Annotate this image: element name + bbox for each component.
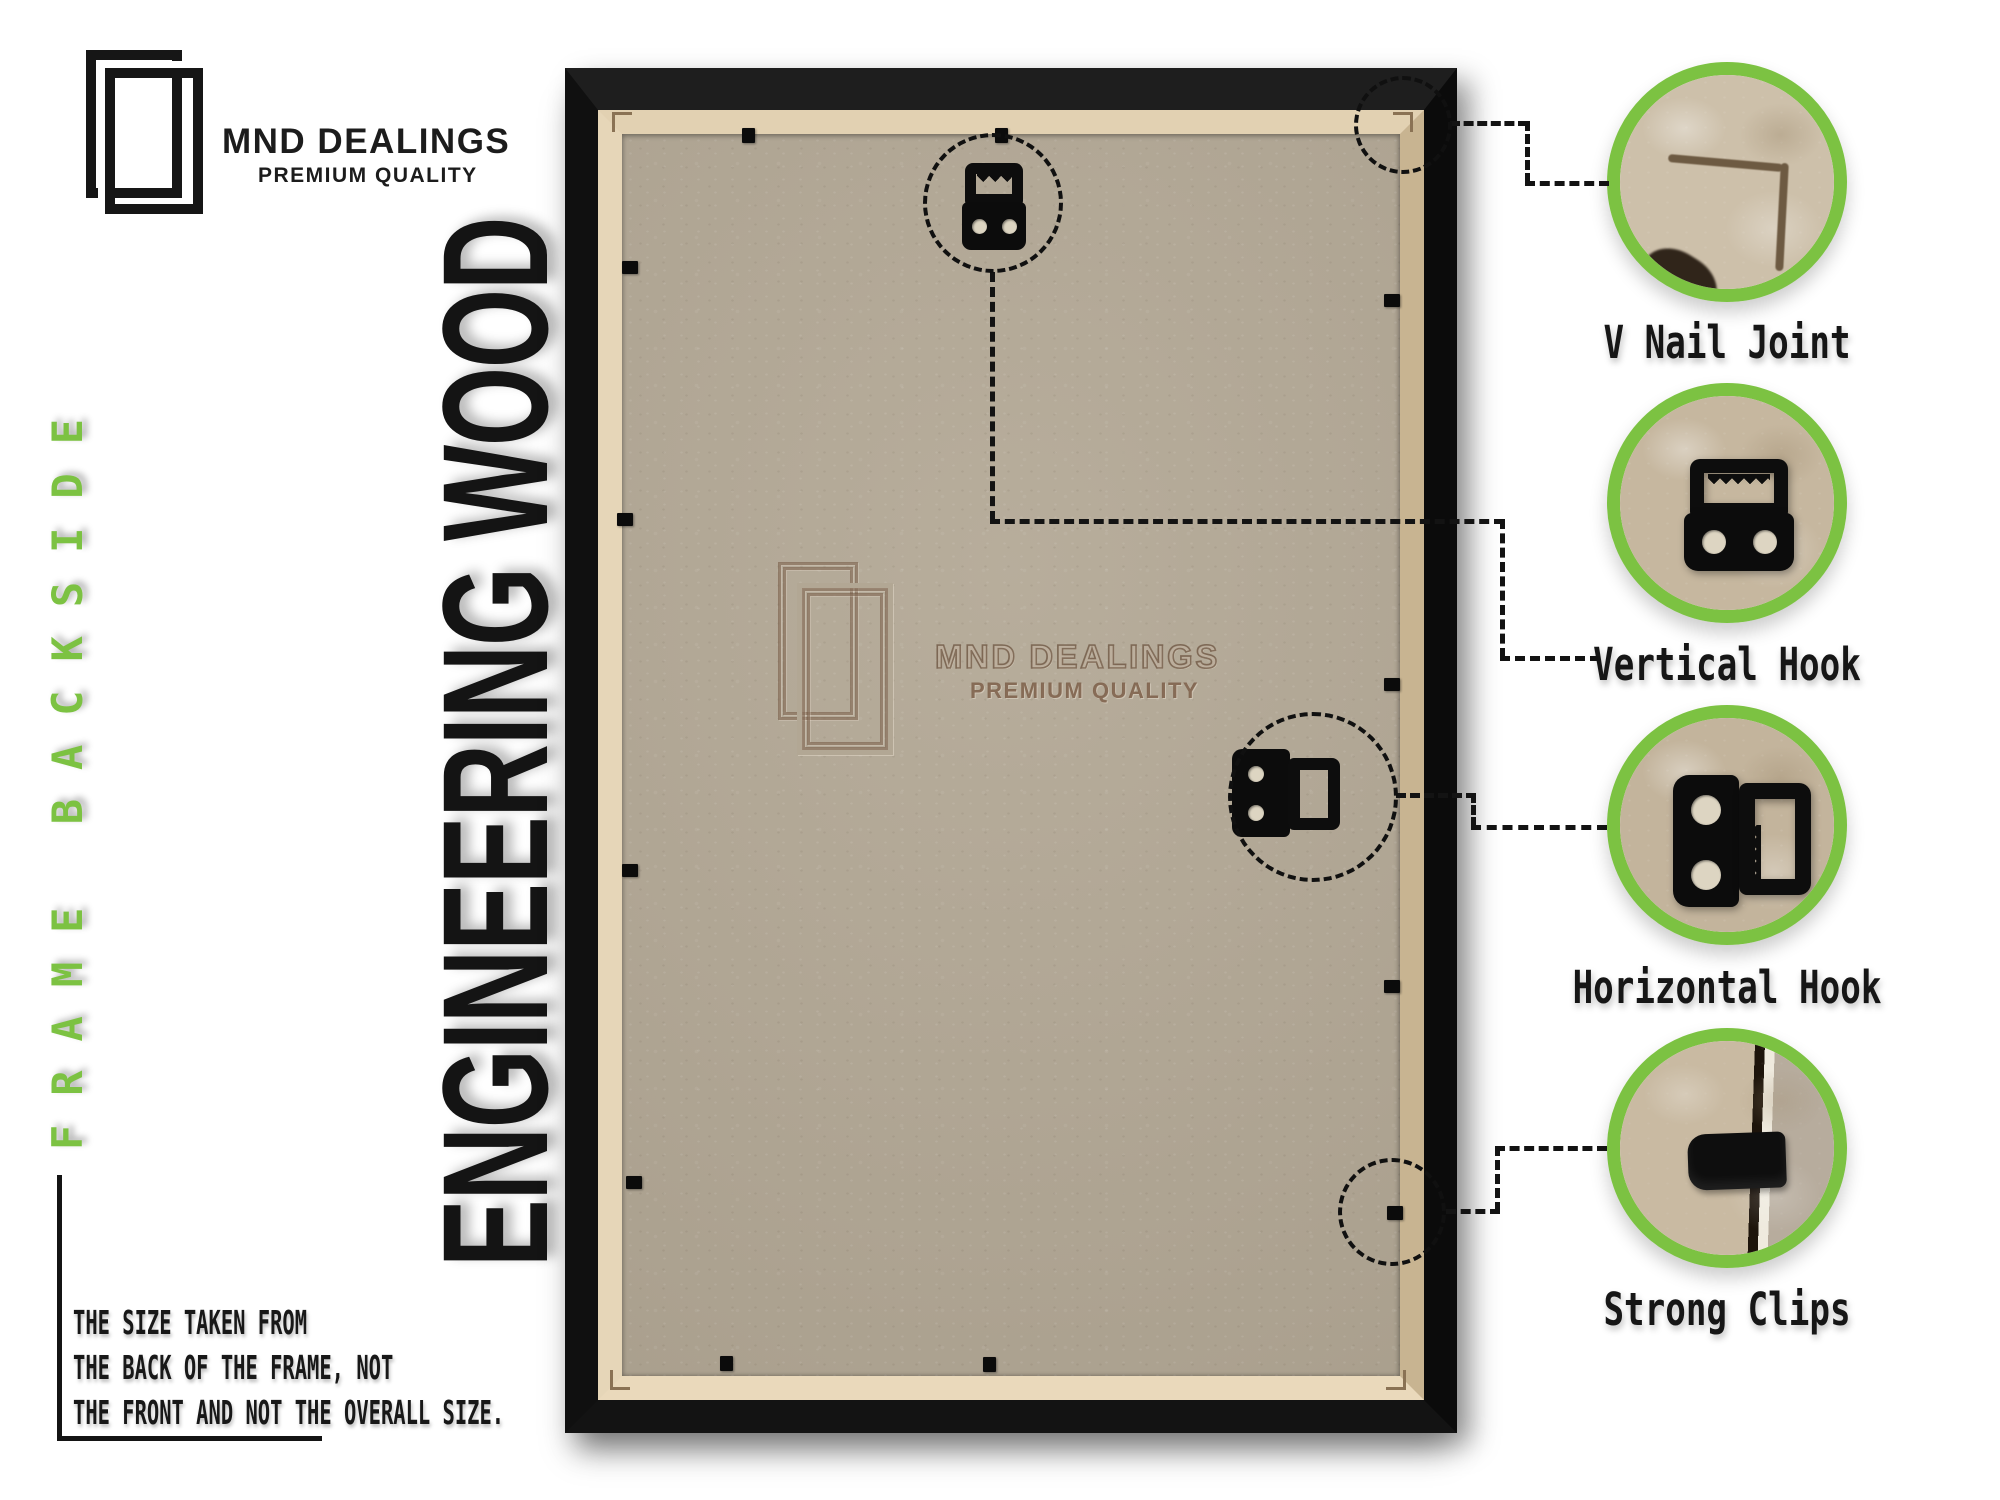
clip-icon: [622, 864, 638, 877]
size-note-line2: THE BACK OF THE FRAME, NOT: [73, 1345, 504, 1390]
engineering-wood-label: ENGINEERING WOOD: [420, 223, 570, 1267]
callout-vertical-hook-plate: [1684, 513, 1794, 571]
clip-icon: [742, 128, 755, 143]
connector-line: [1495, 1146, 1607, 1151]
clip-icon: [622, 261, 638, 274]
connector-line: [990, 519, 1504, 524]
callout-vertical-hook-label: Vertical Hook: [1567, 643, 1886, 687]
v-nail-corner-mark-icon: [610, 1370, 630, 1390]
v-nail-corner-mark-icon: [1386, 1370, 1406, 1390]
callout-v-nail-photo: [1607, 62, 1847, 302]
callout-strong-clips-photo: [1607, 1028, 1847, 1268]
callout-horizontal-hook-label: Horizontal Hook: [1567, 966, 1886, 1010]
size-note: THE SIZE TAKEN FROM THE BACK OF THE FRAM…: [73, 1300, 504, 1435]
watermark-front-frame: [802, 588, 888, 750]
connector-line: [1500, 656, 1600, 661]
callout-horizontal-hook-photo: [1607, 705, 1847, 945]
poster-canvas: MND DEALINGS PREMIUM QUALITY FRAME BACKS…: [0, 0, 2000, 1500]
callout-strong-clips-label: Strong Clips: [1567, 1288, 1886, 1332]
connector-line: [1471, 825, 1607, 830]
brand-name: MND DEALINGS: [222, 122, 510, 162]
connector-line: [1525, 181, 1609, 186]
frame-backside-label: FRAME BACKSIDE: [38, 380, 98, 1160]
connector-line: [1471, 793, 1476, 827]
brand-tagline: PREMIUM QUALITY: [258, 164, 478, 188]
connector-line: [1446, 1209, 1500, 1214]
dashed-highlight-strong-clip: [1338, 1158, 1446, 1266]
clip-icon: [626, 1176, 642, 1189]
hook-teeth: [1708, 474, 1770, 484]
connector-line: [1495, 1146, 1500, 1212]
callout-strong-clip-icon: [1687, 1131, 1787, 1190]
watermark-name: MND DEALINGS: [935, 638, 1220, 676]
hook-hole: [1753, 530, 1777, 554]
callout-vertical-hook-photo: [1607, 383, 1847, 623]
hook-hole: [1691, 860, 1721, 890]
clip-icon: [1384, 294, 1400, 307]
connector-line: [1525, 121, 1530, 183]
clip-icon: [983, 1357, 996, 1372]
clip-icon: [1384, 678, 1400, 691]
hook-hole: [1702, 530, 1726, 554]
callout-v-nail-label: V Nail Joint: [1567, 321, 1886, 365]
clip-icon: [1384, 980, 1400, 993]
callout-horizontal-hook-loop: [1739, 783, 1811, 895]
watermark-tagline: PREMIUM QUALITY: [970, 678, 1199, 704]
clip-icon: [720, 1356, 733, 1371]
connector-line: [1450, 121, 1528, 126]
dashed-highlight-vertical-hook: [923, 133, 1063, 273]
dashed-highlight-corner-joint: [1354, 76, 1452, 174]
size-note-line3: THE FRONT AND NOT THE OVERALL SIZE.: [73, 1390, 504, 1435]
clip-icon: [617, 513, 633, 526]
v-nail-corner-mark-icon: [612, 112, 632, 132]
connector-line: [1500, 519, 1505, 658]
size-note-line1: THE SIZE TAKEN FROM: [73, 1300, 504, 1345]
hook-hole: [1691, 795, 1721, 825]
callout-vertical-hook-loop: [1690, 459, 1788, 517]
hook-teeth: [1751, 825, 1761, 885]
connector-line: [1396, 793, 1476, 798]
brand-logo-front-frame-icon: [105, 68, 203, 214]
dashed-highlight-horizontal-hook: [1228, 712, 1398, 882]
connector-line: [990, 272, 995, 521]
